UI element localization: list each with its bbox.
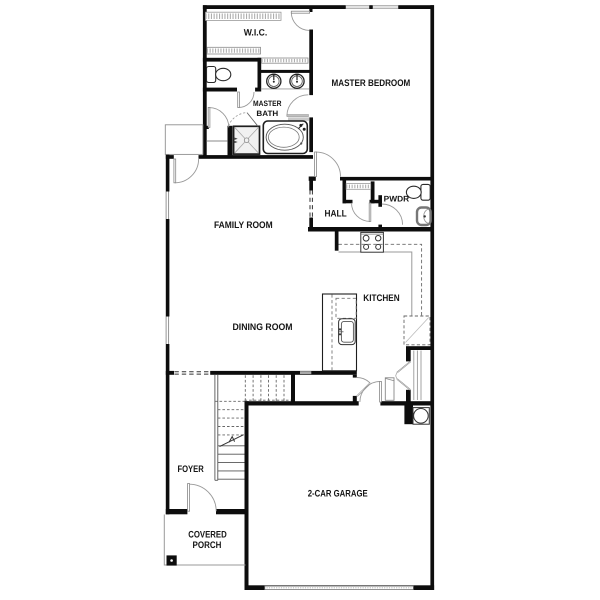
svg-text:DINING ROOM: DINING ROOM	[233, 322, 293, 333]
svg-text:KITCHEN: KITCHEN	[363, 293, 400, 304]
svg-text:MASTER: MASTER	[253, 99, 282, 108]
svg-text:FOYER: FOYER	[177, 464, 203, 475]
svg-text:HALL: HALL	[325, 208, 347, 219]
svg-text:BATH: BATH	[256, 109, 278, 118]
svg-text:PWDR: PWDR	[384, 195, 410, 204]
svg-text:MASTER BEDROOM: MASTER BEDROOM	[332, 78, 411, 89]
svg-text:2-CAR GARAGE: 2-CAR GARAGE	[308, 488, 368, 499]
svg-text:PORCH: PORCH	[193, 540, 222, 551]
svg-text:FAMILY ROOM: FAMILY ROOM	[214, 220, 273, 231]
svg-text:COVERED: COVERED	[188, 529, 227, 540]
svg-text:W.I.C.: W.I.C.	[244, 28, 268, 38]
